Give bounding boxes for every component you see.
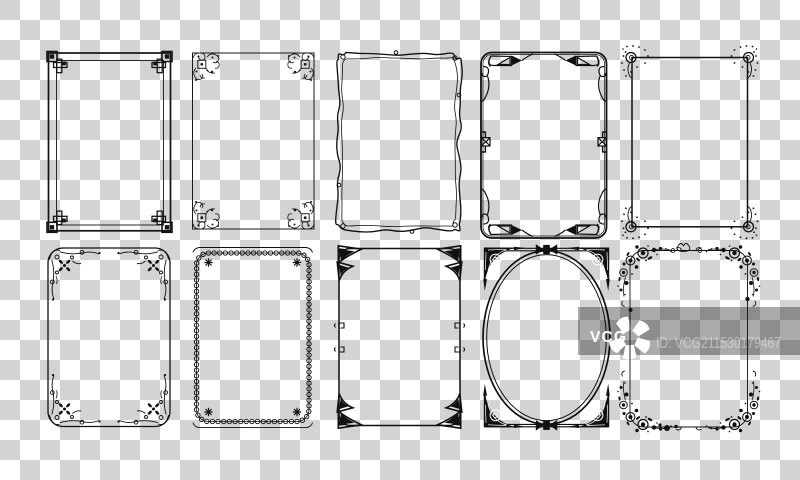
svg-text:ID: VCG211530179467: ID: VCG211530179467 [656,335,781,352]
